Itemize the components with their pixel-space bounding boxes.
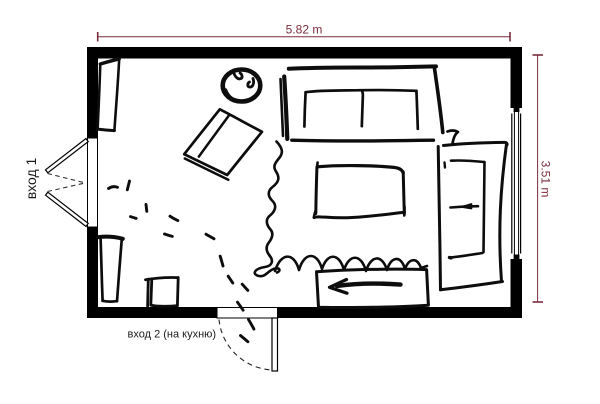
- svg-text:5.82 m: 5.82 m: [286, 23, 323, 37]
- svg-text:вход 1: вход 1: [23, 157, 39, 199]
- svg-text:вход 2 (на кухню): вход 2 (на кухню): [128, 329, 217, 341]
- svg-text:3.51 m: 3.51 m: [539, 161, 553, 198]
